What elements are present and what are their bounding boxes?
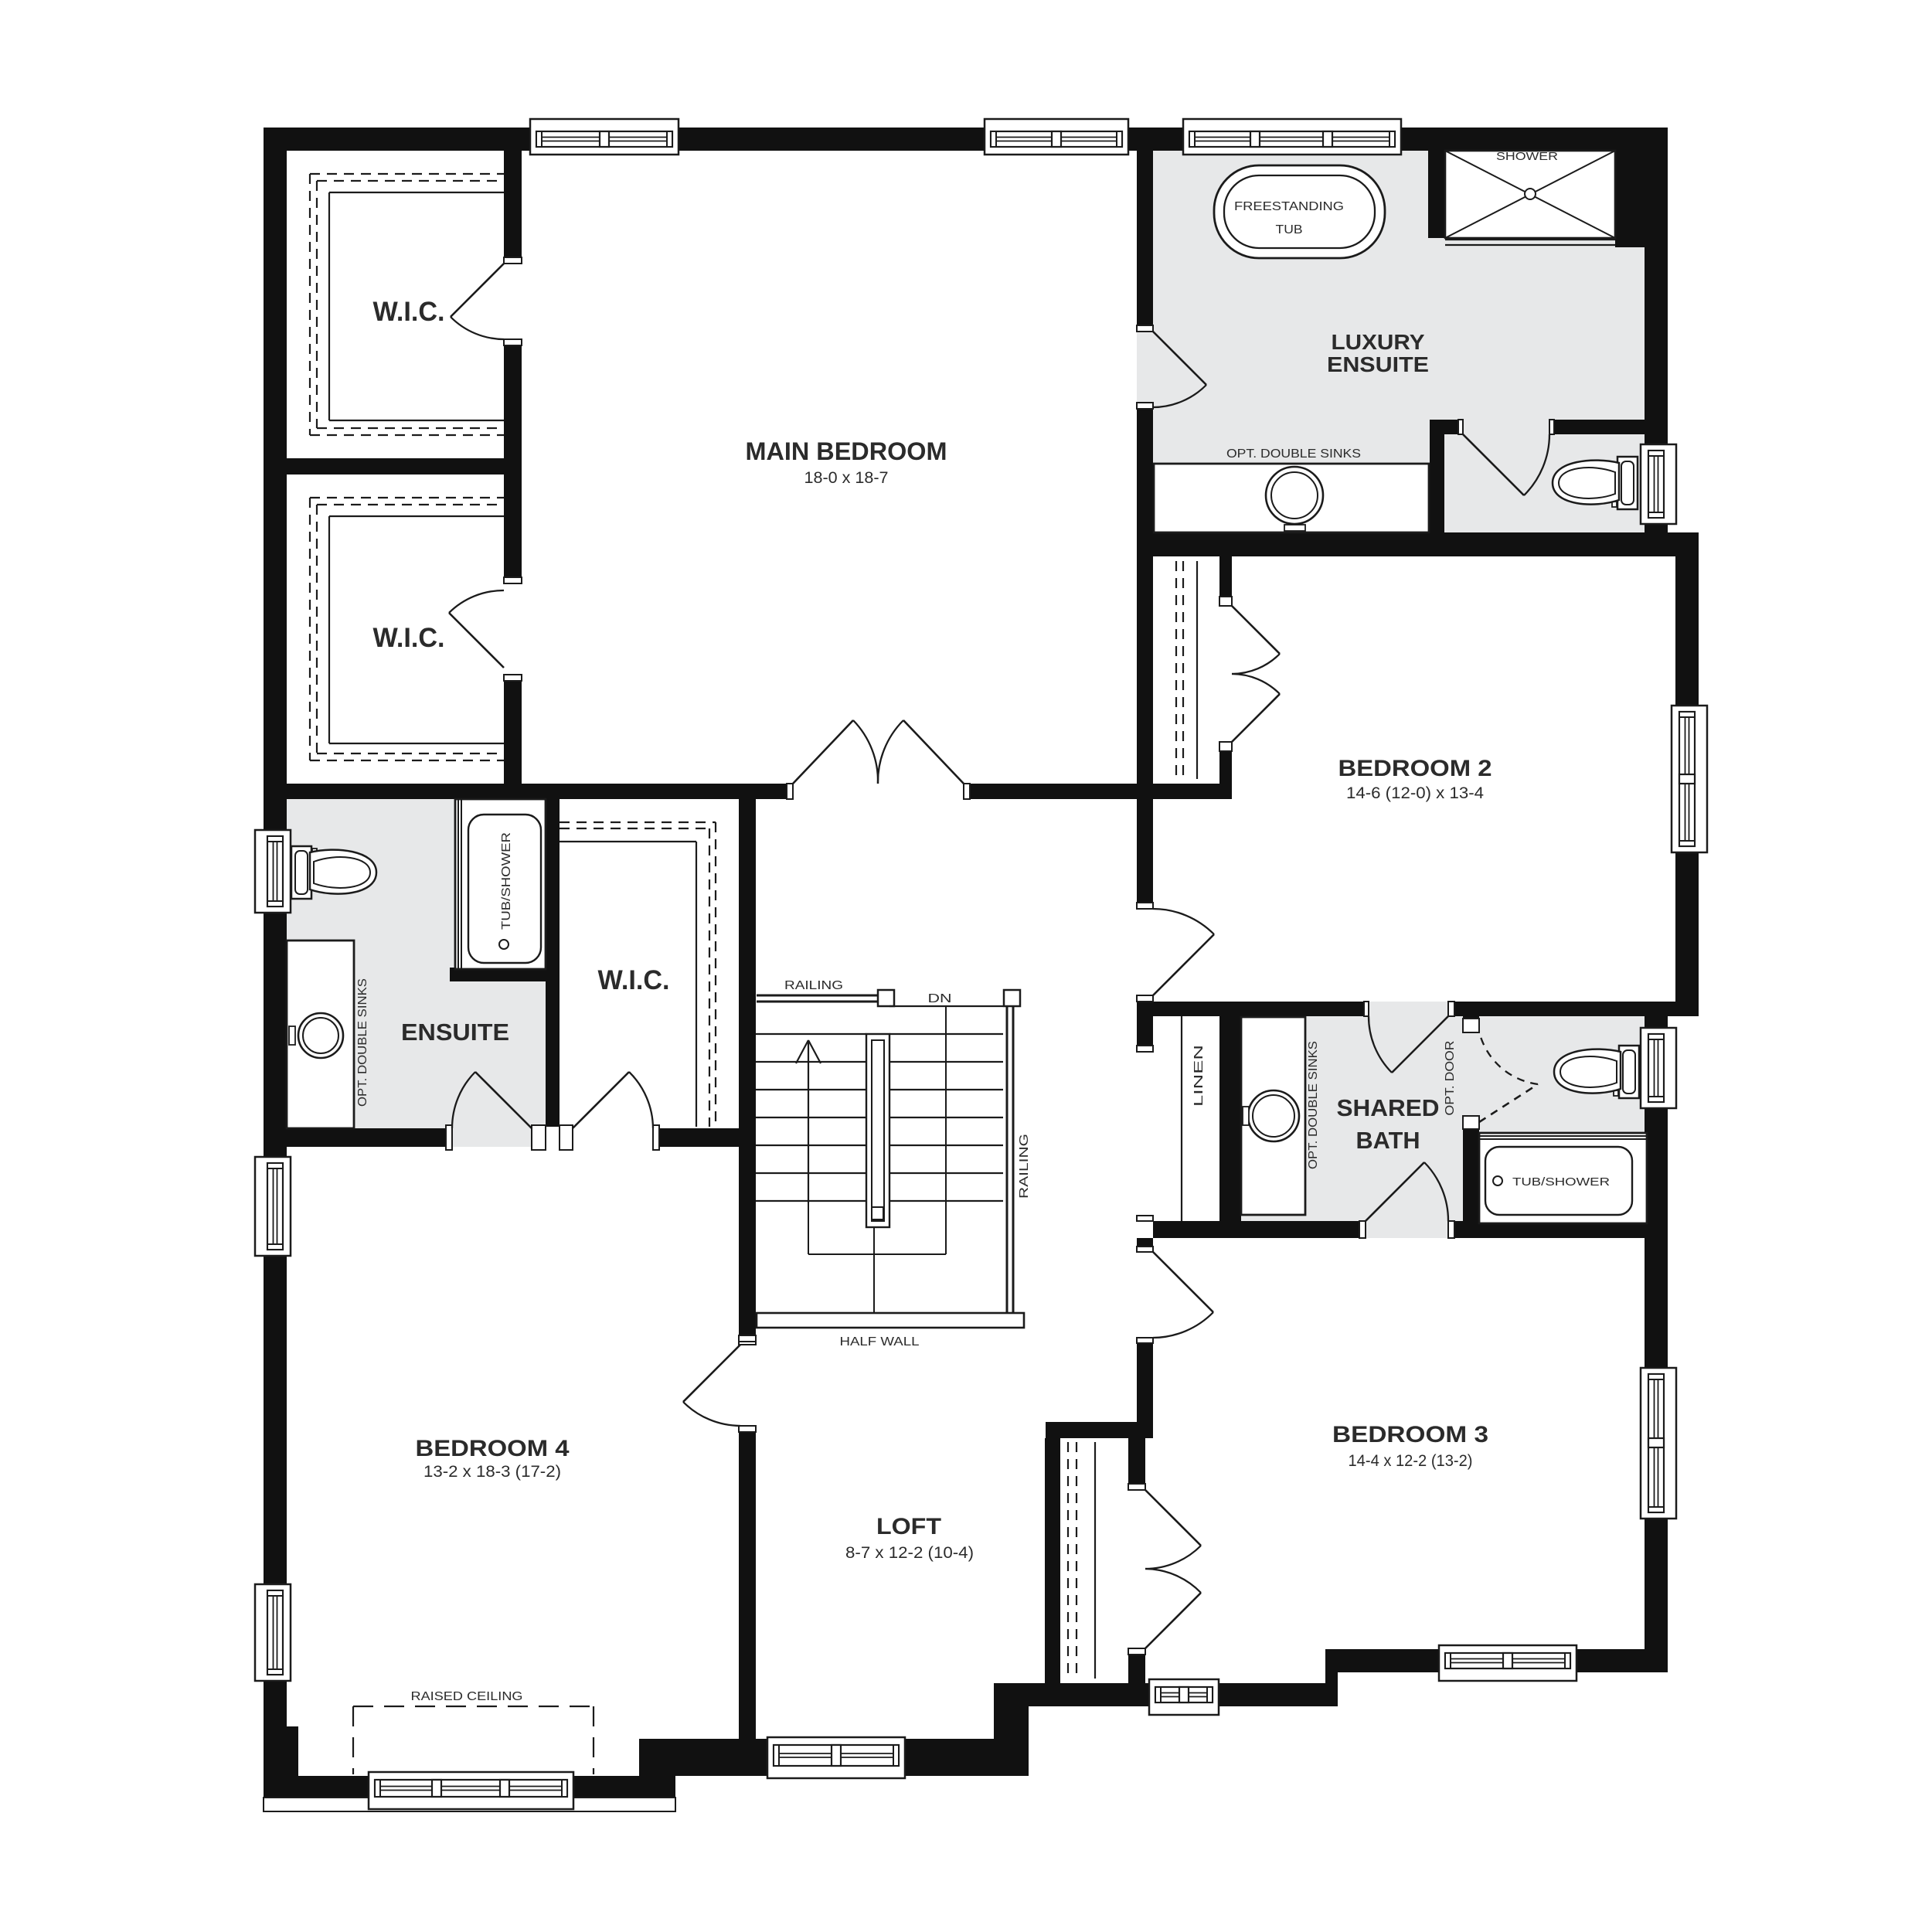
svg-text:W.I.C.: W.I.C. (373, 297, 445, 327)
svg-text:OPT. DOUBLE SINKS: OPT. DOUBLE SINKS (1226, 447, 1361, 461)
svg-text:LINEN: LINEN (1192, 1045, 1206, 1107)
svg-text:FREESTANDING: FREESTANDING (1234, 200, 1344, 213)
svg-text:BEDROOM 4: BEDROOM 4 (416, 1436, 570, 1461)
svg-text:TUB/SHOWER: TUB/SHOWER (1512, 1175, 1610, 1189)
svg-text:DN: DN (928, 992, 952, 1005)
svg-text:TUB/SHOWER: TUB/SHOWER (500, 832, 513, 930)
svg-text:18-0 x 18-7: 18-0 x 18-7 (804, 469, 889, 487)
svg-text:OPT. DOUBLE SINKS: OPT. DOUBLE SINKS (1307, 1041, 1320, 1169)
svg-text:RAISED CEILING: RAISED CEILING (411, 1690, 523, 1703)
svg-text:TUB: TUB (1276, 223, 1303, 236)
svg-text:SHARED: SHARED (1337, 1094, 1440, 1121)
svg-text:BEDROOM 2: BEDROOM 2 (1338, 756, 1492, 781)
svg-text:8-7 x 12-2 (10-4): 8-7 x 12-2 (10-4) (845, 1544, 974, 1562)
svg-text:ENSUITE: ENSUITE (1327, 352, 1429, 376)
svg-text:W.I.C.: W.I.C. (373, 623, 445, 653)
svg-text:W.I.C.: W.I.C. (598, 965, 670, 995)
svg-text:RAILING: RAILING (1018, 1134, 1031, 1199)
svg-text:LOFT: LOFT (876, 1514, 941, 1539)
svg-text:BATH: BATH (1356, 1127, 1420, 1154)
svg-text:13-2 x 18-3 (17-2): 13-2 x 18-3 (17-2) (423, 1463, 561, 1481)
svg-text:ENSUITE: ENSUITE (401, 1019, 509, 1046)
svg-text:RAILING: RAILING (784, 979, 843, 992)
svg-text:HALF WALL: HALF WALL (840, 1335, 920, 1349)
svg-text:14-6 (12-0) x 13-4: 14-6 (12-0) x 13-4 (1346, 784, 1484, 802)
svg-text:OPT. DOOR: OPT. DOOR (1444, 1041, 1457, 1116)
svg-text:MAIN BEDROOM: MAIN BEDROOM (746, 437, 947, 465)
svg-text:SHOWER: SHOWER (1496, 150, 1558, 163)
svg-text:LUXURY: LUXURY (1332, 330, 1425, 354)
svg-text:14-4 x 12-2 (13-2): 14-4 x 12-2 (13-2) (1349, 1452, 1473, 1470)
svg-text:OPT. DOUBLE SINKS: OPT. DOUBLE SINKS (356, 978, 369, 1107)
svg-text:BEDROOM 3: BEDROOM 3 (1332, 1422, 1488, 1447)
